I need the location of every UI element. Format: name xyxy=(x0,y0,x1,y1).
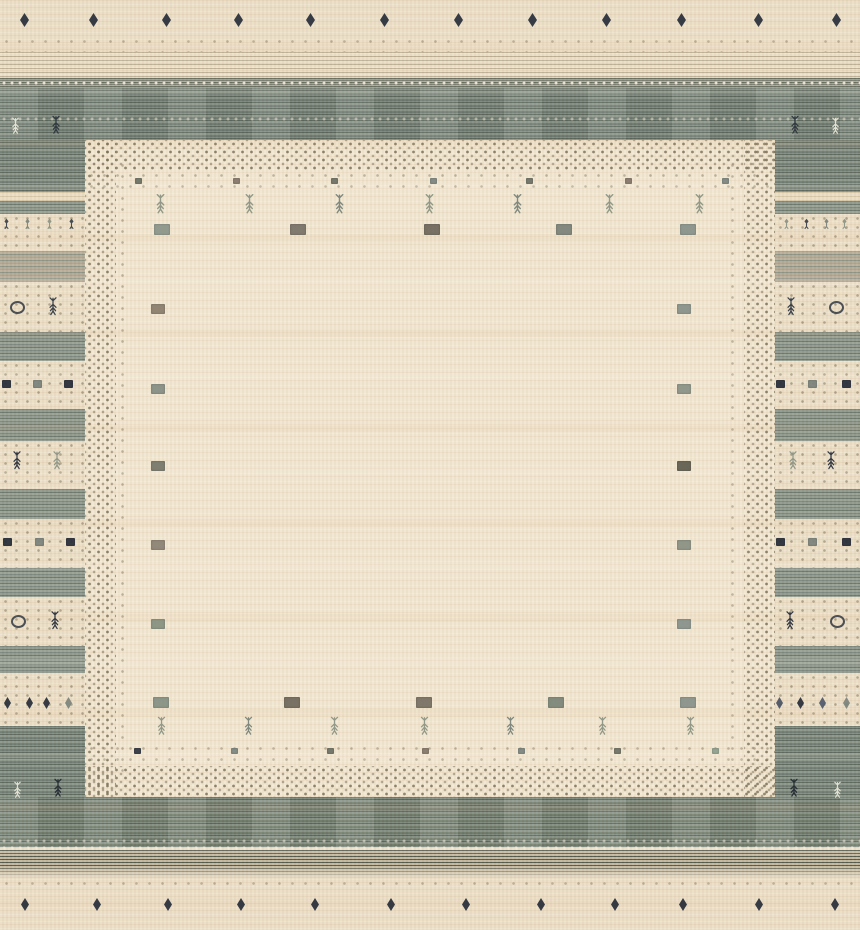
square-motif xyxy=(33,380,42,388)
tree-motif xyxy=(155,716,168,735)
square-motif xyxy=(416,697,432,708)
tree-motif xyxy=(596,716,609,735)
square-motif xyxy=(154,224,170,235)
square-motif xyxy=(290,224,306,235)
tree-motif xyxy=(788,778,800,797)
square-motif xyxy=(526,178,533,184)
tree-motif xyxy=(243,193,256,214)
tree-motif xyxy=(47,296,59,316)
square-motif xyxy=(66,538,75,546)
tiny-tree-motif xyxy=(783,218,790,230)
tree-motif xyxy=(603,193,616,214)
tree-motif xyxy=(830,117,841,134)
tree-motif xyxy=(825,450,837,470)
square-motif xyxy=(808,380,817,388)
tree-motif xyxy=(789,115,801,134)
square-motif xyxy=(677,540,691,550)
square-motif xyxy=(151,619,165,629)
square-motif xyxy=(677,461,691,471)
square-motif xyxy=(677,384,691,394)
tree-motif xyxy=(242,716,255,735)
square-motif xyxy=(151,304,165,314)
square-motif xyxy=(151,461,165,471)
square-motif xyxy=(842,380,851,388)
square-motif xyxy=(556,224,572,235)
square-motif xyxy=(722,178,729,184)
square-motif xyxy=(712,748,719,754)
tree-motif xyxy=(693,193,706,214)
tree-motif xyxy=(418,716,431,735)
tree-motif xyxy=(50,115,62,134)
tree-motif xyxy=(333,193,346,214)
tree-motif xyxy=(784,610,796,630)
square-motif xyxy=(842,538,851,546)
square-motif xyxy=(135,178,142,184)
ring-motif xyxy=(830,615,845,628)
tree-motif xyxy=(511,193,524,214)
tree-motif xyxy=(787,450,799,470)
square-motif xyxy=(614,748,621,754)
square-motif xyxy=(151,540,165,550)
square-motif xyxy=(327,748,334,754)
square-motif xyxy=(808,538,817,546)
tree-motif xyxy=(154,193,167,214)
square-motif xyxy=(424,224,440,235)
tiny-tree-motif xyxy=(68,218,75,230)
tiny-tree-motif xyxy=(823,218,830,230)
ring-motif xyxy=(829,301,844,314)
tiny-tree-motif xyxy=(841,218,848,230)
square-motif xyxy=(430,178,437,184)
gabbeh-rug-photo xyxy=(0,0,860,930)
tiny-tree-motif xyxy=(24,218,31,230)
square-motif xyxy=(625,178,632,184)
tree-motif xyxy=(49,610,61,630)
tiny-tree-motif xyxy=(803,218,810,230)
square-motif xyxy=(284,697,300,708)
tiny-tree-motif xyxy=(3,218,10,230)
tree-motif xyxy=(423,193,436,214)
tree-motif xyxy=(51,450,63,470)
ring-motif xyxy=(11,615,26,628)
tree-motif xyxy=(52,778,64,797)
tree-motif xyxy=(12,781,23,798)
ring-motif xyxy=(10,301,25,314)
square-motif xyxy=(548,697,564,708)
tree-motif xyxy=(10,117,21,134)
tree-motif xyxy=(11,450,23,470)
warp-texture-overlay xyxy=(0,0,860,930)
tree-motif xyxy=(504,716,517,735)
square-motif xyxy=(35,538,44,546)
square-motif xyxy=(233,178,240,184)
square-motif xyxy=(680,697,696,708)
square-motif xyxy=(776,538,785,546)
square-motif xyxy=(151,384,165,394)
square-motif xyxy=(680,224,696,235)
square-motif xyxy=(231,748,238,754)
square-motif xyxy=(422,748,429,754)
square-motif xyxy=(776,380,785,388)
square-motif xyxy=(677,304,691,314)
square-motif xyxy=(677,619,691,629)
tree-motif xyxy=(832,781,843,798)
tree-motif xyxy=(785,296,797,316)
square-motif xyxy=(153,697,169,708)
square-motif xyxy=(64,380,73,388)
square-motif xyxy=(331,178,338,184)
tiny-tree-motif xyxy=(46,218,53,230)
tree-motif xyxy=(684,716,697,735)
square-motif xyxy=(2,380,11,388)
square-motif xyxy=(518,748,525,754)
tree-motif xyxy=(328,716,341,735)
square-motif xyxy=(134,748,141,754)
square-motif xyxy=(3,538,12,546)
